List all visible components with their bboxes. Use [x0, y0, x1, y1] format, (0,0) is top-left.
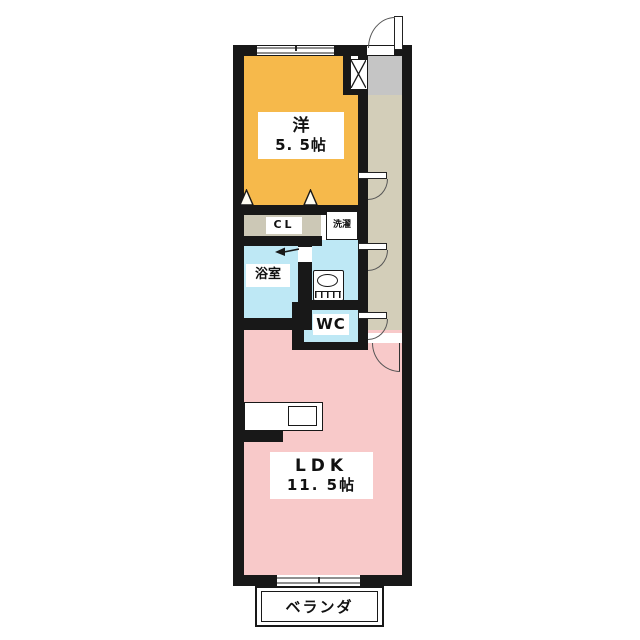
- wall-below-washroom: [298, 300, 368, 310]
- washbasin-icon: [313, 270, 344, 301]
- closet-label-text: CL: [273, 219, 294, 232]
- bifold-door-icon: [303, 189, 318, 206]
- bathroom-door-opening: [298, 247, 312, 262]
- western-room-size: 5. 5帖: [275, 137, 327, 154]
- wall-below-closet: [233, 236, 322, 246]
- kitchen-stub-wall: [233, 431, 283, 442]
- shoe-cabinet-icon: [350, 59, 368, 90]
- bathroom-door-arrow-icon: [275, 246, 299, 257]
- ldk-label: LDK 11. 5帖: [270, 452, 373, 499]
- bathroom-label: 浴室: [246, 264, 290, 287]
- outer-wall-left: [233, 45, 244, 586]
- balcony-label-text: ベランダ: [285, 596, 353, 617]
- corridor-area: [368, 95, 402, 333]
- ldk-size: 11. 5帖: [287, 477, 356, 494]
- balcony-area: ベランダ: [255, 586, 384, 627]
- entrance-door-arc-icon: [368, 17, 395, 48]
- window-icon: [257, 46, 334, 55]
- laundry-box: 洗濯: [326, 211, 358, 240]
- bathroom-label-text: 浴室: [255, 268, 281, 283]
- western-room-door-leaf-icon: [358, 172, 387, 179]
- floorplan-image: 洋 5. 5帖 CL 洗濯 浴室 WC LDK 11. 5帖 ベランダ: [0, 0, 640, 640]
- ldk-name: LDK: [295, 457, 348, 477]
- wc-label: WC: [313, 314, 349, 335]
- wc-door-leaf-icon: [358, 312, 387, 319]
- closet-label: CL: [266, 217, 302, 234]
- laundry-label-text: 洗濯: [333, 220, 351, 230]
- bifold-door-icon: [239, 189, 254, 206]
- balcony-inner-rail: ベランダ: [261, 591, 378, 622]
- kitchen-sink-icon: [288, 406, 317, 426]
- outer-wall-right: [402, 45, 412, 586]
- western-room-label: 洋 5. 5帖: [258, 112, 344, 159]
- western-room-name: 洋: [293, 117, 310, 137]
- wc-bottom-wall: [292, 342, 368, 350]
- entrance-door-leaf-icon: [394, 16, 403, 50]
- entrance-floor-area: [364, 56, 402, 95]
- balcony-window-icon: [277, 575, 360, 586]
- wc-label-text: WC: [316, 316, 346, 333]
- washroom-door-leaf-icon: [358, 243, 387, 250]
